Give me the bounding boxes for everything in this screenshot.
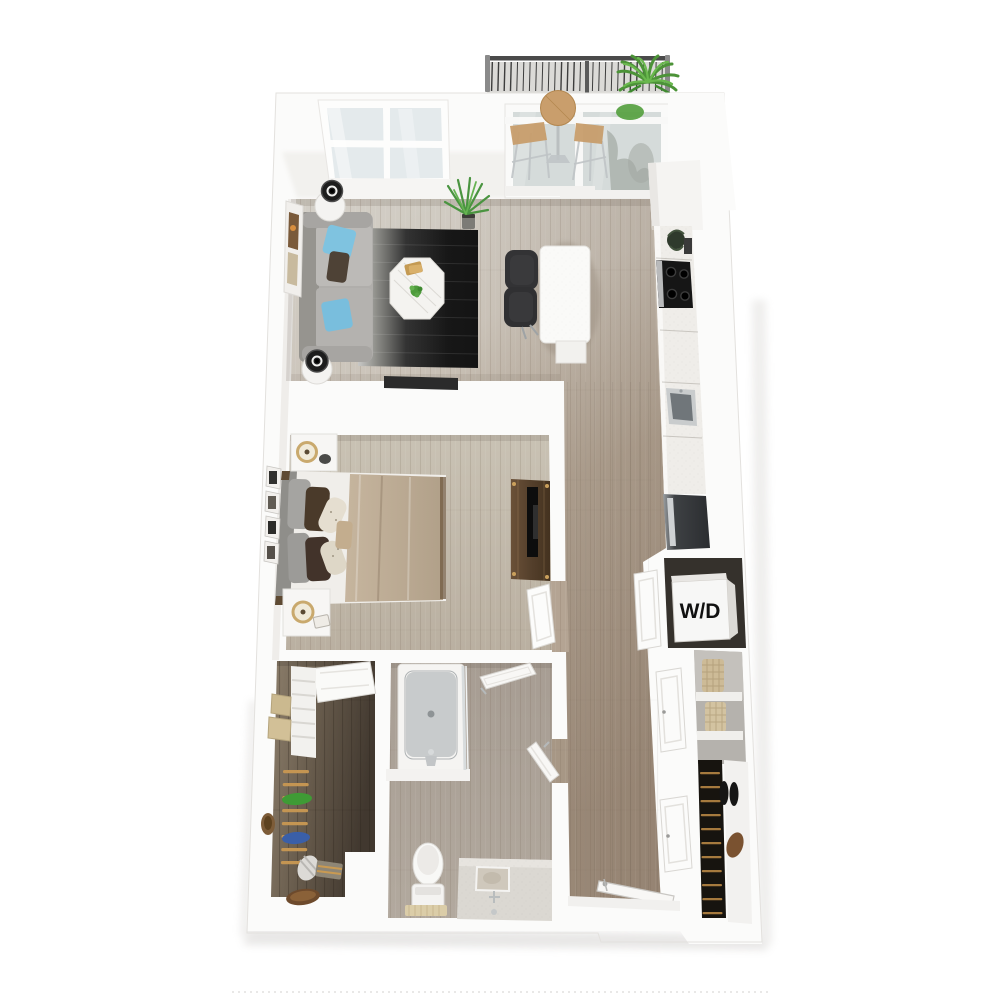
svg-text:W/D: W/D — [680, 600, 721, 623]
